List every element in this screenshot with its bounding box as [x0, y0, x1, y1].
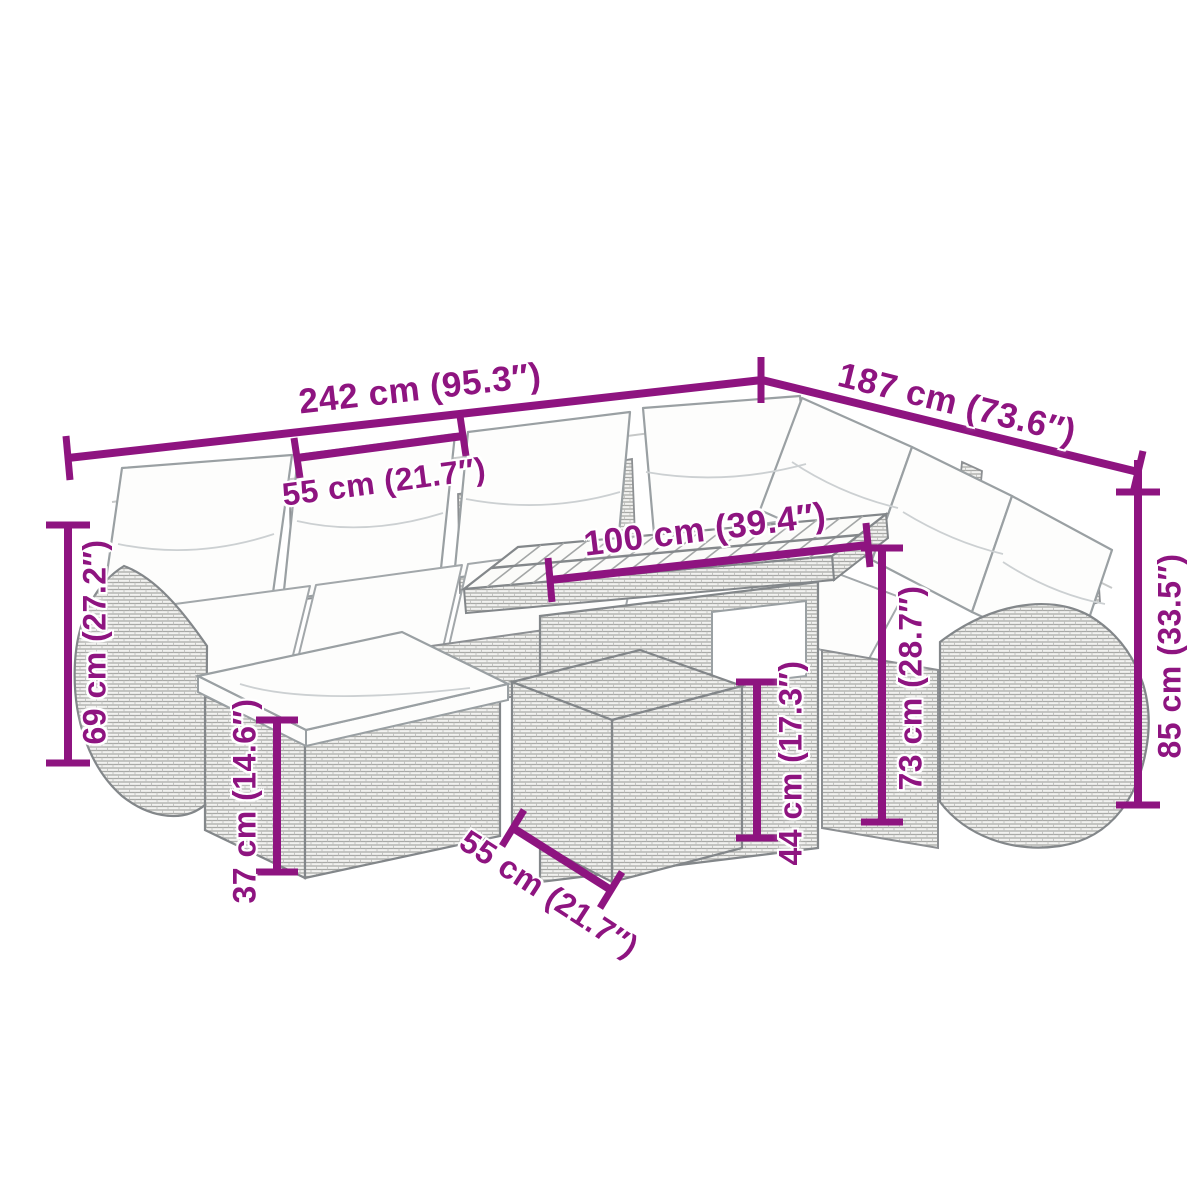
dim-label-lower-table-height: 44 cm (17.3″): [773, 660, 810, 865]
low-module-right-face: [612, 686, 742, 882]
furniture-line-art: [0, 0, 1200, 1200]
dim-label-footstool-height: 37 cm (14.6″): [227, 698, 264, 903]
dimension-diagram: 242 cm (95.3″) 187 cm (73.6″) 55 cm (21.…: [0, 0, 1200, 1200]
dim-label-back-height-right: 85 cm (33.5″): [1152, 553, 1189, 758]
dim-label-back-height-left: 69 cm (27.2″): [77, 539, 114, 744]
dim-label-table-height: 73 cm (28.7″): [893, 585, 930, 790]
sofa-right-armrest: [940, 604, 1149, 847]
